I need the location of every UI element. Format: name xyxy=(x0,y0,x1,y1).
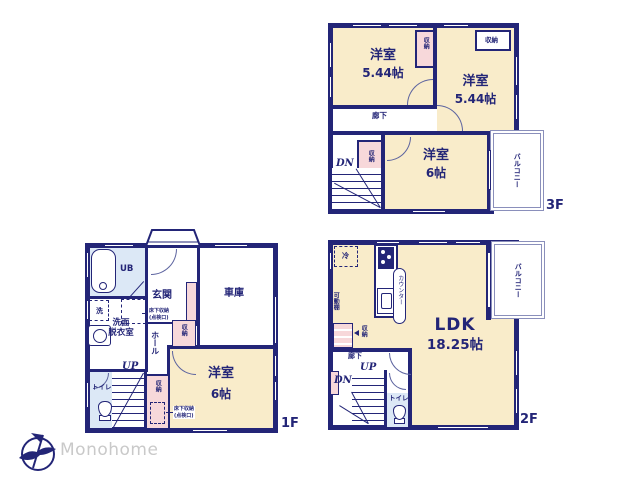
bird-logo-icon xyxy=(14,427,62,475)
washer-label: 洗 xyxy=(96,307,103,315)
window xyxy=(443,24,469,27)
bathtub-drain xyxy=(99,282,107,290)
window xyxy=(437,426,489,429)
floor-label-3f: 3F xyxy=(546,198,564,214)
floor-label-2f: 2F xyxy=(520,412,538,428)
closet-label: 収納 xyxy=(180,324,187,336)
window xyxy=(274,355,277,377)
window xyxy=(104,244,134,247)
wall xyxy=(330,105,436,109)
room-size: 6帖 xyxy=(398,166,474,180)
closet-hall: 収納 xyxy=(172,320,196,347)
toilet-label: トイレ xyxy=(389,395,409,403)
room-size: 6帖 xyxy=(185,387,257,401)
ldk-size: 18.25帖 xyxy=(413,337,497,353)
window xyxy=(329,42,332,68)
toilet-label: トイレ xyxy=(92,384,112,392)
counter-pill: カウンター xyxy=(393,268,406,324)
stairs-dn-label: DN xyxy=(336,158,354,170)
room-label: 洋室 xyxy=(345,48,421,64)
door-arc xyxy=(151,249,177,275)
garage-label: 車庫 xyxy=(224,288,244,300)
washroom-line2: 脱衣室 xyxy=(98,328,144,338)
underfloor-line1: 床下収納 xyxy=(149,308,169,315)
window xyxy=(192,429,228,432)
window xyxy=(329,76,332,98)
window xyxy=(515,388,518,414)
window xyxy=(515,350,518,376)
underfloor-storage-label: 床下収納 (点検口) xyxy=(148,308,170,321)
window xyxy=(86,300,89,320)
room-size: 5.44帖 xyxy=(437,92,514,106)
fridge-label: 冷 xyxy=(342,252,349,260)
arrow-icon xyxy=(354,330,359,336)
burner xyxy=(381,250,385,254)
wall xyxy=(85,428,278,433)
burner xyxy=(387,255,391,259)
stairs-up-label: UP xyxy=(122,361,138,373)
washroom-line1: 洗面 xyxy=(98,318,144,328)
room-label: 洋室 xyxy=(398,148,474,164)
wall xyxy=(328,425,519,430)
stairs-up-label: UP xyxy=(360,362,376,374)
balcony-label: バルコニー xyxy=(492,242,544,318)
underfloor-storage-label: 床下収納 (点検口) xyxy=(173,406,195,419)
balcony-door-window xyxy=(488,150,491,190)
underfloor-line2: (点検口) xyxy=(149,315,169,322)
window xyxy=(388,24,418,27)
balcony-label: バルコニー xyxy=(491,131,543,210)
garage-opening xyxy=(274,296,277,344)
closet-label: 収納 xyxy=(367,150,374,162)
closet-label: 収納 xyxy=(360,325,367,337)
balcony-door-window xyxy=(487,252,491,308)
window xyxy=(412,210,446,213)
unit-bath-label: UB xyxy=(120,264,133,274)
underfloor-storage-dashed-box xyxy=(150,402,165,424)
underfloor-line2: (点検口) xyxy=(174,413,194,420)
balcony-3f: バルコニー xyxy=(490,130,544,211)
window xyxy=(515,56,518,86)
wall xyxy=(197,246,200,348)
fridge-dashed-box: 冷 xyxy=(334,246,358,267)
counter-label: カウンター xyxy=(397,275,404,305)
corridor-label: 廊下 xyxy=(372,111,387,120)
floorplan-page: 収納 収納 収納 バルコニー 洋室 5.44帖 xyxy=(0,0,640,480)
window xyxy=(376,241,400,244)
window xyxy=(86,252,89,278)
closet-label: 収納 xyxy=(422,37,429,49)
window xyxy=(86,382,89,408)
closet-label: 収納 xyxy=(485,37,498,45)
window xyxy=(352,24,382,27)
entrance-porch xyxy=(144,228,202,248)
wall xyxy=(328,348,412,352)
wall xyxy=(328,209,494,214)
room-label: 洋室 xyxy=(185,366,257,382)
closet-label: 収納 xyxy=(154,380,161,392)
closet-stairs: 収納 xyxy=(147,374,168,428)
logo-company-name: Monohome xyxy=(60,440,158,460)
leader-line xyxy=(166,412,173,413)
stove-icon xyxy=(378,247,394,269)
window xyxy=(274,381,277,401)
sink-basin xyxy=(381,293,392,309)
room-label: 洋室 xyxy=(437,74,514,90)
bathtub-icon xyxy=(91,249,116,293)
window xyxy=(418,241,448,244)
closet-3f-b: 収納 xyxy=(475,30,511,51)
balcony-2f: バルコニー xyxy=(491,241,545,319)
underfloor-line1: 床下収納 xyxy=(174,406,194,413)
ldk-label: LDK xyxy=(420,315,490,335)
window xyxy=(515,94,518,120)
window xyxy=(329,252,332,270)
entrance-label: 玄関 xyxy=(152,290,172,302)
window xyxy=(214,244,248,247)
corridor-label: 廊下 xyxy=(348,352,362,360)
sink-icon xyxy=(377,288,394,314)
burner xyxy=(381,260,385,264)
room-size: 5.44帖 xyxy=(345,66,421,80)
movable-shelf-label: 可動棚 xyxy=(332,292,339,310)
floor-label-1f: 1F xyxy=(281,416,299,432)
washroom-label: 洗面 脱衣室 xyxy=(98,318,144,338)
window xyxy=(455,241,481,244)
closet-2f xyxy=(333,323,353,348)
hall-label: ホール xyxy=(150,331,160,355)
stairs-dn-label: DN xyxy=(334,375,352,387)
